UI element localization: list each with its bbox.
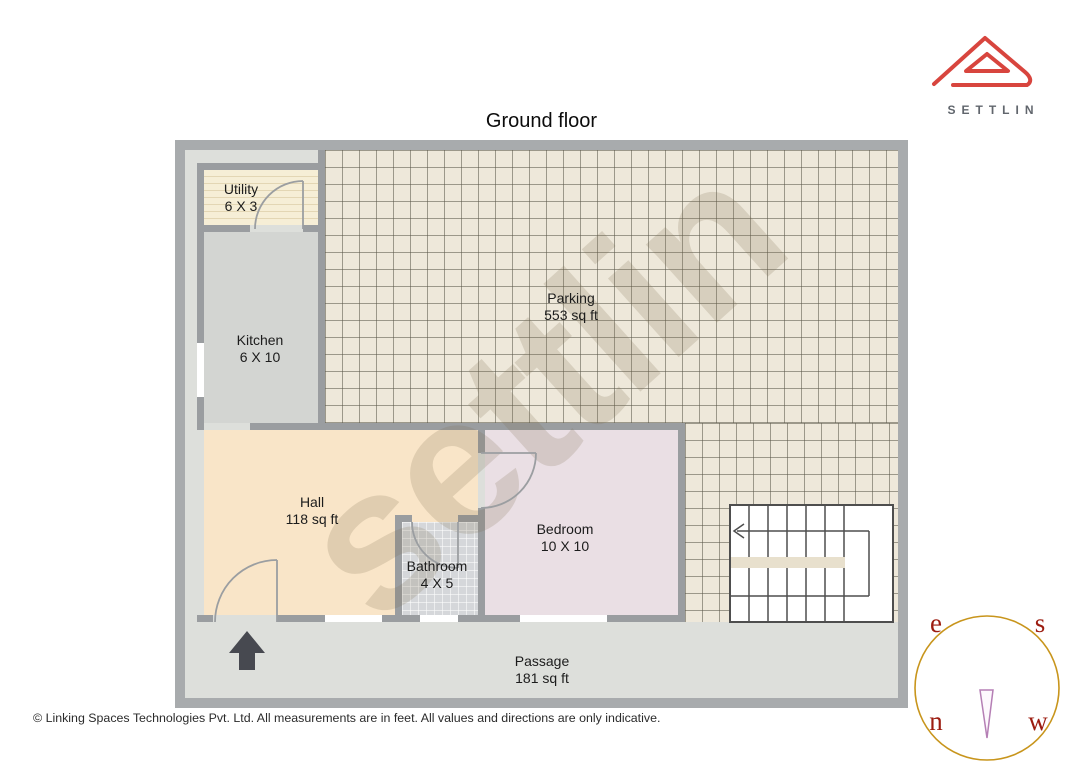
brand-block: SETTLIN — [928, 28, 1053, 117]
kitchen-label: Kitchen 6 X 10 — [200, 332, 320, 366]
parking-label: Parking 553 sq ft — [511, 290, 631, 324]
wall — [197, 163, 325, 170]
wall — [303, 225, 325, 232]
compass-letter-e: e — [930, 608, 942, 638]
compass-letter-n: n — [929, 706, 943, 736]
brand-name: SETTLIN — [928, 103, 1053, 117]
wall — [458, 515, 485, 522]
wall — [607, 615, 685, 622]
wall — [478, 430, 485, 453]
wall — [678, 423, 685, 622]
parking-area — [325, 150, 898, 423]
wall — [197, 225, 250, 232]
hall-label: Hall 118 sq ft — [252, 494, 372, 528]
parking-area-side — [685, 423, 898, 622]
wall — [395, 615, 420, 622]
page-title: Ground floor — [175, 110, 908, 133]
floorplan-page: Ground floor SETTLIN settlin — [0, 0, 1080, 764]
compass-rose: e s n w — [905, 605, 1080, 764]
bathroom-label: Bathroom 4 X 5 — [377, 558, 497, 592]
wall — [382, 615, 395, 622]
settlin-logo-icon — [928, 28, 1053, 96]
kitchen-room — [204, 232, 318, 423]
wall — [250, 423, 685, 430]
compass-letter-s: s — [1035, 608, 1046, 638]
wall — [485, 615, 520, 622]
wall — [458, 615, 485, 622]
compass-letter-w: w — [1028, 706, 1048, 736]
wall — [318, 150, 325, 430]
passage-label: Passage 181 sq ft — [482, 653, 602, 687]
wall — [197, 615, 213, 622]
wall — [395, 515, 412, 522]
bedroom-label: Bedroom 10 X 10 — [505, 521, 625, 555]
copyright-note: © Linking Spaces Technologies Pvt. Ltd. … — [33, 711, 660, 725]
bathroom-window — [420, 615, 458, 622]
bedroom-window — [520, 615, 607, 622]
hall-window — [325, 615, 382, 622]
wall — [277, 615, 325, 622]
utility-label: Utility 6 X 3 — [181, 181, 301, 215]
